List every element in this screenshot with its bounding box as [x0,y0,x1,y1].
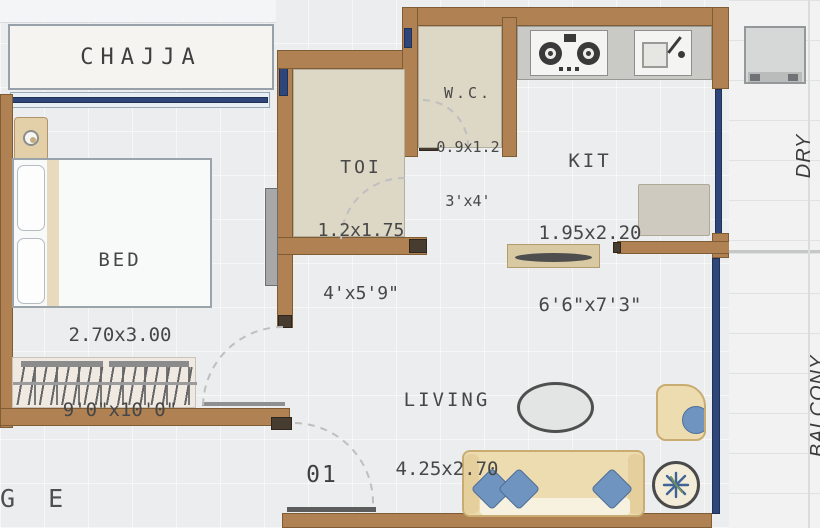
nightstand [14,117,48,161]
bedroom-door-arc [203,327,283,407]
kit-room-name: KIT [520,149,660,173]
balcony-label: BALCONY [758,351,782,461]
dry-balcony-label-line1: DRY [793,89,816,223]
plant-icon [655,464,697,506]
unit-number-label: 01 [297,462,347,488]
bedroom-door-threshold [202,402,285,406]
top-margin-area [0,0,276,23]
bedroom-window-glass [12,97,268,103]
floor-plan: CHAJJA [0,0,820,528]
wc-size-m: 0.9x1.2 [412,138,524,156]
wc-size-ft: 3'x4' [412,192,524,210]
balcony-divider-line [729,250,820,253]
kit-size-ft: 6'6"x7'3" [520,293,660,317]
kit-size-m: 1.95x2.20 [520,221,660,245]
chajja-label: CHAJJA [80,45,201,70]
wc-vent-window [404,28,412,48]
toi-room-label: TOI 1.2x1.75 4'x5'9" [296,115,426,346]
chajja-area: CHAJJA [8,24,274,90]
entrance-threshold [287,507,376,512]
sink-icon [634,30,692,76]
toi-size-m: 1.2x1.75 [296,220,426,241]
toi-room-name: TOI [296,157,426,178]
bed-room-label: BED 2.70x3.00 9'0"x10'0" [35,198,205,473]
toi-vent-window [279,68,288,96]
kit-window [715,89,722,235]
living-size-m: 4.25x2.70 [367,458,527,481]
stove-icon [530,30,608,76]
bed-size-m: 2.70x3.00 [35,323,205,348]
washing-machine-icon [744,26,806,84]
bedroom-door-post-cap [278,315,292,328]
armchair-cushion [682,406,706,434]
toi-size-ft: 4'x5'9" [296,283,426,304]
living-room-label: LIVING 4.25x2.70 14'0"x9'0" [367,343,527,528]
entrance-post-cap [271,417,292,430]
bedroom-open-door-leaf [265,188,278,286]
wc-kit-top-wall [402,7,735,26]
wc-room-name: W.C. [412,84,524,102]
balcony-window [712,258,720,514]
center-table [517,382,594,433]
armchair [656,384,706,441]
living-room-name: LIVING [367,389,527,412]
kit-right-wall [712,7,729,89]
bed-room-name: BED [35,248,205,273]
kit-room-label: KIT 1.95x2.20 6'6"x7'3" [520,101,660,365]
balcony-label-text: BALCONY [806,351,820,461]
edge-partial-text: G E [0,484,110,513]
bed-size-ft: 9'0"x10'0" [35,398,205,423]
wc-room-label: W.C. 0.9x1.2 3'x4' [412,48,524,246]
plant-table [652,461,700,509]
dry-balcony-label: DRY BALCONY [747,89,793,223]
